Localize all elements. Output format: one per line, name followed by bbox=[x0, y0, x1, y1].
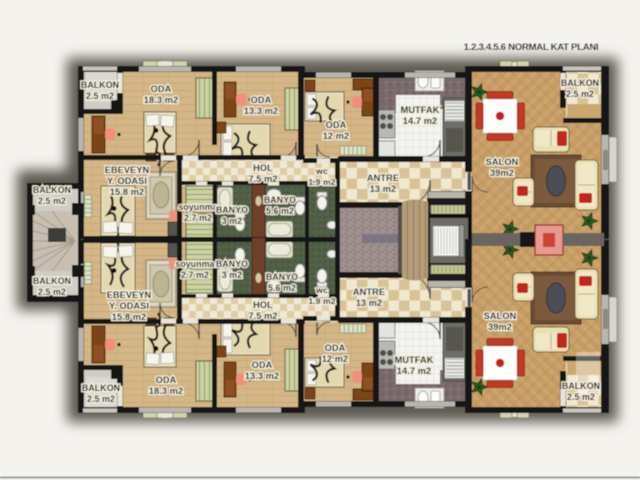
svg-text:15.8 m2: 15.8 m2 bbox=[110, 187, 144, 197]
svg-text:18.3 m2: 18.3 m2 bbox=[149, 386, 183, 396]
svg-text:soyunma: soyunma bbox=[175, 259, 214, 269]
svg-text:HOL: HOL bbox=[253, 163, 273, 173]
svg-text:3 m2: 3 m2 bbox=[222, 270, 242, 280]
svg-text:wc: wc bbox=[315, 285, 328, 295]
svg-text:7.5 m2: 7.5 m2 bbox=[248, 174, 277, 184]
svg-text:EBEVEYN: EBEVEYN bbox=[107, 290, 152, 300]
svg-text:39m2: 39m2 bbox=[490, 168, 514, 178]
svg-text:18.3 m2: 18.3 m2 bbox=[144, 95, 178, 105]
svg-text:5.6 m2: 5.6 m2 bbox=[268, 283, 296, 293]
svg-text:1.9 m2: 1.9 m2 bbox=[308, 296, 335, 306]
svg-text:soyunma: soyunma bbox=[178, 202, 217, 212]
svg-text:BALKON: BALKON bbox=[33, 185, 71, 195]
svg-text:BANYO: BANYO bbox=[264, 195, 296, 205]
svg-text:ANTRE: ANTRE bbox=[353, 287, 385, 297]
svg-text:12 m2: 12 m2 bbox=[322, 354, 349, 364]
svg-text:ODA: ODA bbox=[251, 95, 272, 105]
svg-text:SALON: SALON bbox=[484, 311, 517, 321]
svg-text:15.8 m2: 15.8 m2 bbox=[112, 312, 146, 322]
svg-text:2.5 m2: 2.5 m2 bbox=[87, 394, 115, 404]
svg-text:3 m2: 3 m2 bbox=[222, 216, 242, 226]
svg-text:MUTFAK: MUTFAK bbox=[401, 105, 440, 115]
svg-text:13 m2: 13 m2 bbox=[370, 184, 397, 194]
svg-text:13.3 m2: 13.3 m2 bbox=[244, 106, 278, 116]
svg-text:BANYO: BANYO bbox=[266, 272, 298, 282]
svg-text:MUTFAK: MUTFAK bbox=[395, 355, 434, 365]
svg-text:BALKON: BALKON bbox=[562, 381, 600, 391]
svg-text:wc: wc bbox=[315, 166, 328, 176]
svg-text:BALKON: BALKON bbox=[561, 78, 599, 88]
svg-text:13 m2: 13 m2 bbox=[356, 298, 383, 308]
svg-text:ODA: ODA bbox=[252, 360, 273, 370]
svg-text:HOL: HOL bbox=[253, 300, 273, 310]
svg-text:5.6 m2: 5.6 m2 bbox=[266, 206, 294, 216]
svg-text:ODA: ODA bbox=[156, 375, 177, 385]
svg-text:12 m2: 12 m2 bbox=[323, 131, 350, 141]
svg-text:14.7 m2: 14.7 m2 bbox=[397, 366, 431, 376]
svg-text:SALON: SALON bbox=[486, 157, 519, 167]
svg-text:ODA: ODA bbox=[326, 120, 347, 130]
svg-text:Y. ODASI: Y. ODASI bbox=[109, 301, 149, 311]
svg-text:ODA: ODA bbox=[325, 343, 346, 353]
svg-text:EBEVEYN: EBEVEYN bbox=[105, 165, 150, 175]
svg-text:2.7 m2: 2.7 m2 bbox=[181, 270, 209, 280]
svg-text:BANYO: BANYO bbox=[216, 205, 248, 215]
svg-text:2.5 m2: 2.5 m2 bbox=[38, 196, 66, 206]
svg-text:13.3 m2: 13.3 m2 bbox=[245, 371, 279, 381]
svg-text:ODA: ODA bbox=[151, 84, 172, 94]
svg-text:2.7 m2: 2.7 m2 bbox=[184, 213, 212, 223]
svg-text:BALKON: BALKON bbox=[33, 276, 71, 286]
svg-text:1.9 m2: 1.9 m2 bbox=[308, 177, 335, 187]
svg-text:2.5 m2: 2.5 m2 bbox=[566, 89, 594, 99]
svg-text:BALKON: BALKON bbox=[81, 80, 119, 90]
svg-text:BALKON: BALKON bbox=[82, 383, 120, 393]
svg-text:2.5 m2: 2.5 m2 bbox=[86, 91, 114, 101]
svg-text:BANYO: BANYO bbox=[216, 259, 248, 269]
svg-text:2.5 m2: 2.5 m2 bbox=[38, 287, 66, 297]
svg-text:Y. ODASI: Y. ODASI bbox=[107, 176, 147, 186]
svg-text:39m2: 39m2 bbox=[488, 322, 512, 332]
svg-text:14.7 m2: 14.7 m2 bbox=[403, 116, 437, 126]
svg-text:ANTRE: ANTRE bbox=[367, 173, 399, 183]
svg-text:1.2.3.4.5.6 NORMAL KAT PLANI: 1.2.3.4.5.6 NORMAL KAT PLANI bbox=[464, 42, 599, 53]
svg-text:2.5 m2: 2.5 m2 bbox=[567, 392, 595, 402]
svg-text:7.5 m2: 7.5 m2 bbox=[248, 311, 277, 321]
